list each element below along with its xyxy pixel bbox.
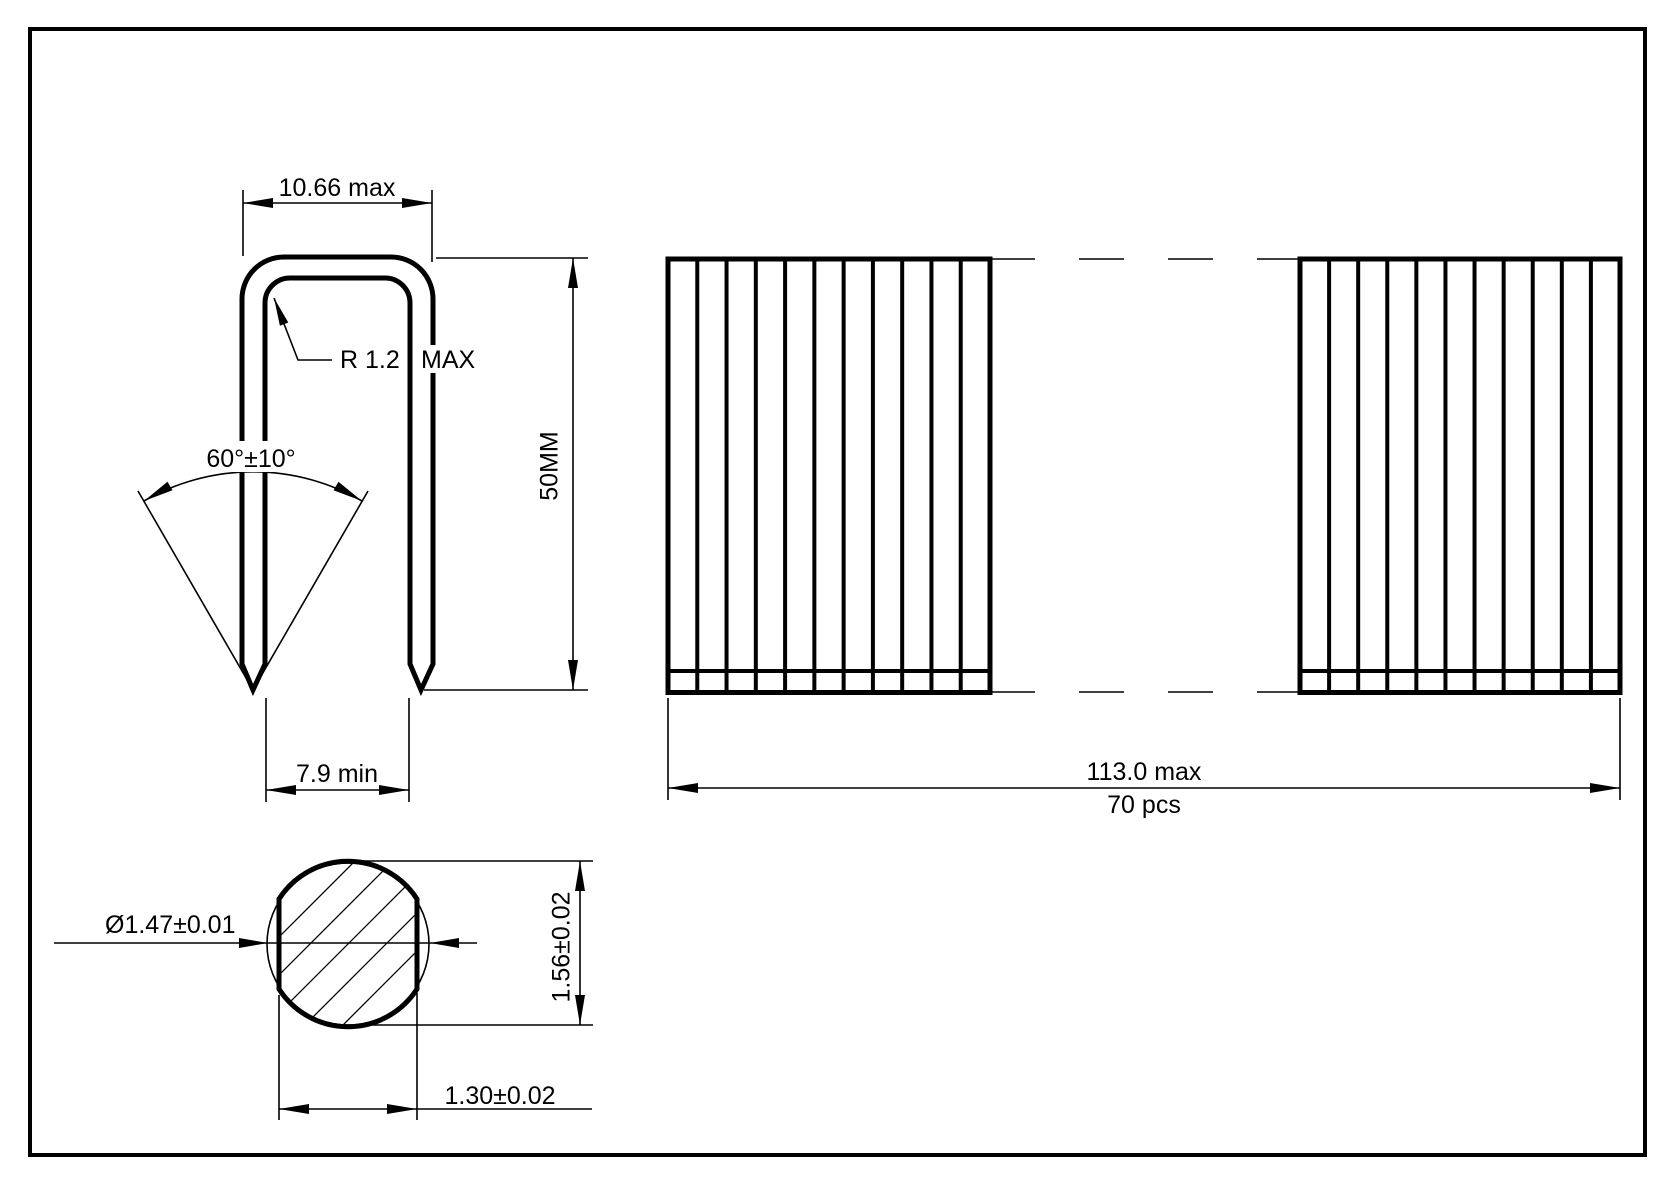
flattened-height-label: 1.56±0.02: [548, 891, 576, 1002]
leg-length-label: 50MM: [536, 431, 564, 500]
page-background: [0, 0, 1674, 1187]
piece-count-label: 70 pcs: [1107, 791, 1181, 819]
inner-width-label: 7.9 min: [296, 760, 378, 788]
crown-width-label: 10.66 max: [279, 174, 396, 202]
flattened-width-label: 1.30±0.02: [444, 1082, 555, 1110]
staple-technical-drawing: 10.66 max R 1.2 MAX 60°±10° 50MM 7.9 min…: [0, 0, 1674, 1187]
radius-value-label: R 1.2: [340, 346, 400, 374]
strip-length-label: 113.0 max: [1087, 758, 1202, 786]
radius-qualifier-label: MAX: [421, 346, 476, 374]
wire-diameter-label: Ø1.47±0.01: [105, 911, 235, 939]
point-angle-label: 60°±10°: [206, 445, 295, 473]
